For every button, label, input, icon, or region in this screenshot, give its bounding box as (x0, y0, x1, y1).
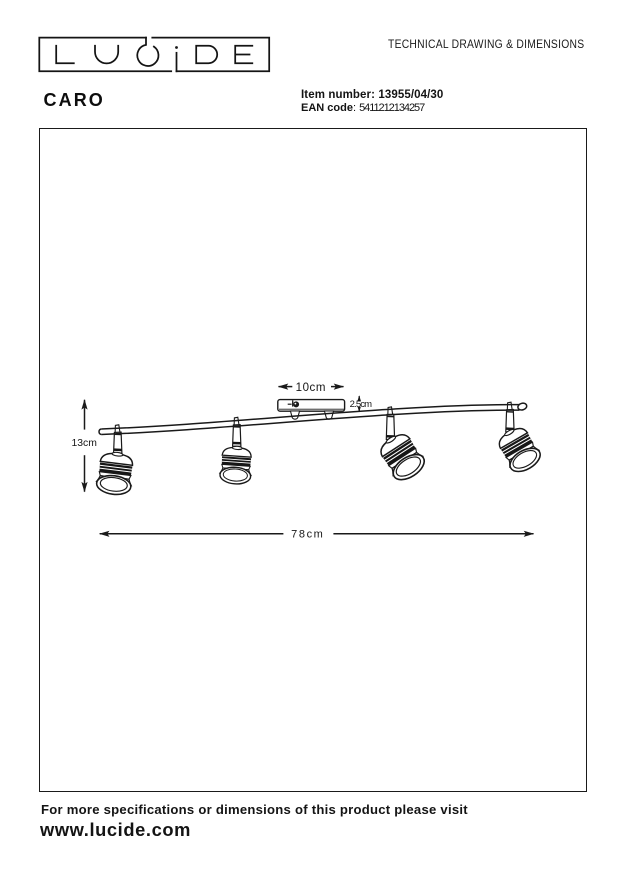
svg-text:10cm: 10cm (296, 382, 326, 394)
svg-text:13cm: 13cm (71, 438, 96, 449)
svg-text:78cm: 78cm (291, 529, 324, 541)
svg-text:2.5cm: 2.5cm (350, 399, 373, 410)
